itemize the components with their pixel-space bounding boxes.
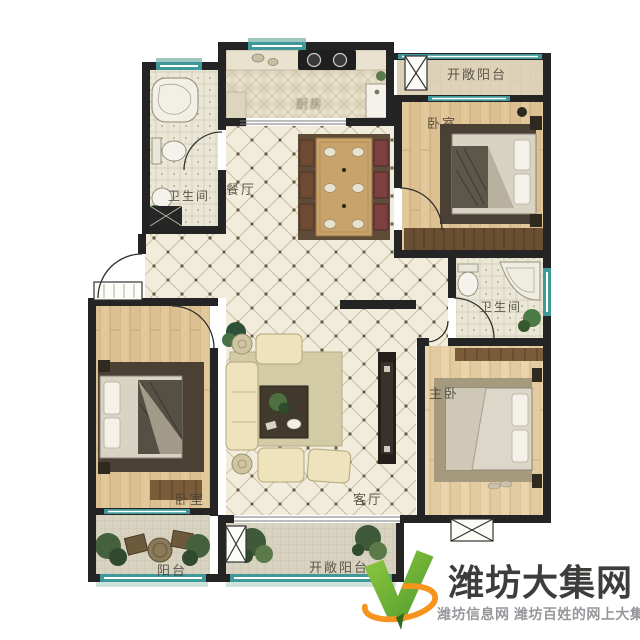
watermark-subtitle: 潍坊信息网 潍坊百姓的网上大集	[437, 604, 640, 624]
room-label-bedroom-left: 卧室	[175, 489, 205, 508]
entry-cabinet	[150, 206, 182, 226]
room-label-bathroom-right: 卫生间	[480, 298, 522, 315]
room-label-dining-room: 餐厅	[226, 179, 256, 198]
coffee-table	[260, 386, 308, 438]
dining-set	[298, 134, 390, 240]
room-label-balcony-left: 阳台	[157, 560, 187, 579]
room-label-bathroom-top-left: 卫生间	[168, 187, 210, 204]
kitchen-sink	[366, 84, 388, 118]
watermark-title: 潍坊大集网	[448, 554, 633, 606]
sofa	[226, 362, 258, 450]
tv-console	[378, 352, 396, 464]
room-label-living-room: 客厅	[353, 489, 383, 508]
toilet	[458, 272, 478, 296]
stove-icon	[298, 50, 356, 70]
room-label-master-bedroom: 主卧	[429, 383, 459, 402]
floorplan-page: 卫生间 厨房 餐厅 开敞阳台 卧室 卫生间 主卧 客厅 卧室 阳台 开敞阳台 潍…	[0, 0, 640, 640]
room-label-balcony-top-right: 开敞阳台	[447, 64, 507, 83]
room-label-bedroom-top-right: 卧室	[427, 113, 457, 132]
toilet	[162, 141, 186, 161]
watermark-v-check-logo	[356, 544, 444, 632]
wardrobe	[404, 228, 543, 250]
room-label-kitchen: 厨房	[296, 95, 324, 112]
